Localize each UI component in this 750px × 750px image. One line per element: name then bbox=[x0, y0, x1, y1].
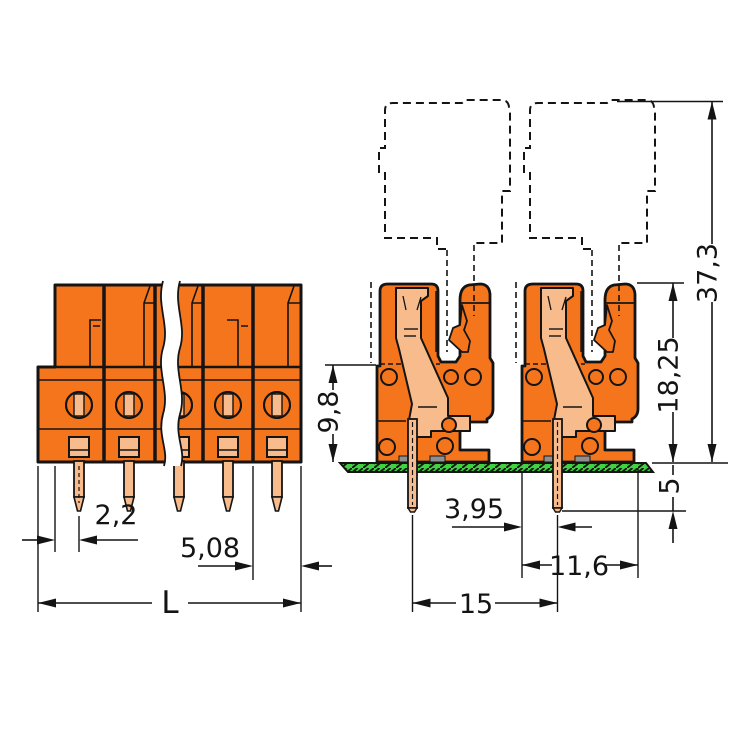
dim-overall-length-value: L bbox=[161, 585, 179, 621]
dim-depth: 11,6 bbox=[522, 551, 638, 582]
dim-pitch-value: 5,08 bbox=[180, 533, 240, 564]
dim-housing-height: 18,25 bbox=[654, 283, 685, 462]
front-view bbox=[38, 281, 301, 511]
dim-total-height: 37,3 bbox=[693, 102, 724, 463]
dim-row-pitch: 15 bbox=[413, 589, 558, 620]
dim-depth-value: 11,6 bbox=[549, 551, 609, 582]
side-view bbox=[340, 100, 655, 512]
dim-edge-to-pin-value: 3,95 bbox=[444, 494, 504, 525]
dim-edge-to-pin: 3,95 bbox=[444, 494, 592, 532]
dim-row-pitch-value: 15 bbox=[459, 589, 493, 620]
dim-pin-to-edge-value: 2,2 bbox=[95, 500, 138, 531]
dim-pin-below-board: 5 bbox=[655, 465, 686, 543]
dim-total-height-value: 37,3 bbox=[693, 243, 724, 303]
break-lines bbox=[161, 281, 182, 466]
pcb-strip bbox=[340, 463, 653, 472]
dim-front-height: 9,8 bbox=[314, 365, 345, 462]
dim-housing-height-value: 18,25 bbox=[654, 336, 685, 413]
dim-pin-below-board-value: 5 bbox=[655, 477, 686, 494]
dim-pitch: 5,08 bbox=[180, 533, 332, 571]
dim-front-height-value: 9,8 bbox=[314, 391, 345, 434]
drawing-canvas: 2,2 5,08 L 9,8 bbox=[0, 0, 750, 750]
technical-drawing: 2,2 5,08 L 9,8 bbox=[0, 0, 750, 750]
dim-overall-length: L bbox=[38, 585, 301, 621]
